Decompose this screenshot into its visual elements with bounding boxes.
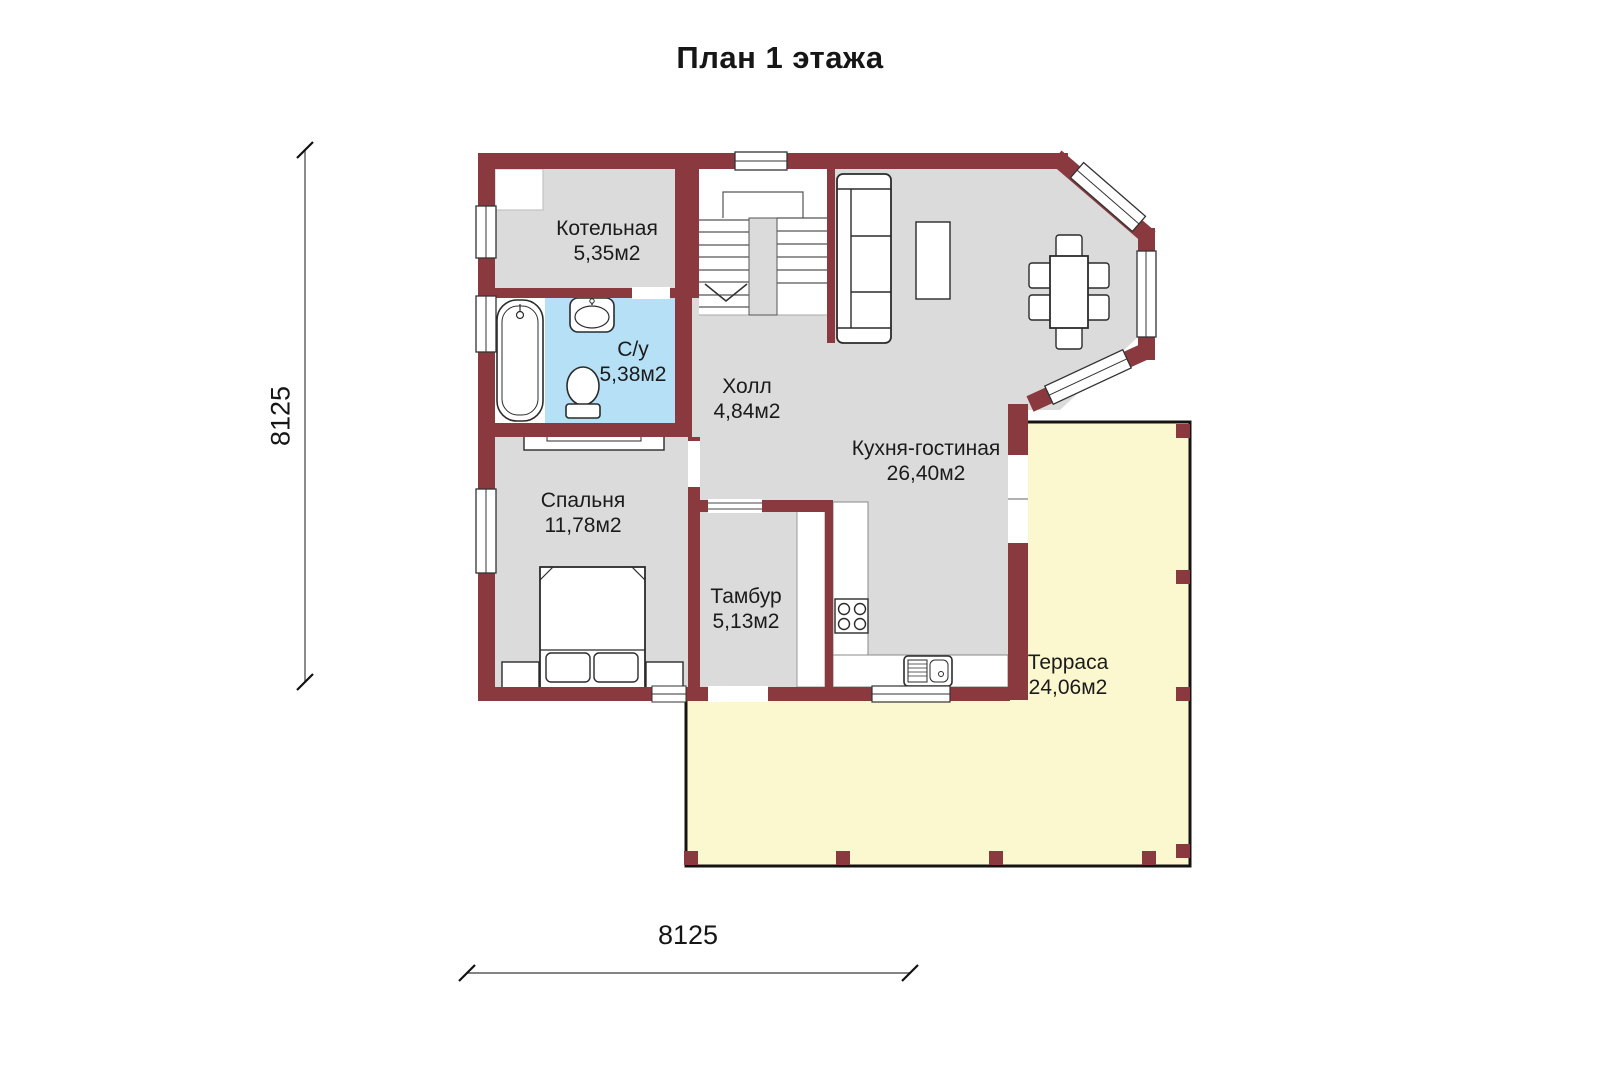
room-name: Тамбур (710, 584, 781, 609)
door-boiler (632, 287, 670, 299)
room-label-kitchen-living: Кухня-гостиная 26,40м2 (852, 436, 1001, 486)
window-bay-right (1137, 251, 1156, 337)
floor-plan-drawing (0, 0, 1620, 1080)
kitchen-sink (904, 656, 952, 686)
door-tambour-entry (708, 686, 768, 702)
room-area: 11,78м2 (541, 513, 625, 538)
window-bathroom (476, 296, 496, 352)
room-name: Котельная (556, 216, 658, 241)
bathtub (497, 300, 543, 421)
door-bedroom (688, 441, 700, 487)
room-label-bedroom: Спальня 11,78м2 (541, 488, 625, 538)
wall-stair-right (827, 169, 835, 343)
room-name: С/у (600, 337, 667, 362)
toilet (566, 367, 600, 418)
sofa (837, 174, 891, 343)
bed (540, 567, 645, 688)
room-area: 24,06м2 (1028, 675, 1109, 700)
dimension-width: 8125 (658, 920, 718, 951)
wall-kitchen-right (1008, 404, 1028, 700)
room-label-bathroom: С/у 5,38м2 (600, 337, 667, 387)
washbasin (570, 296, 614, 332)
window-boiler (476, 206, 496, 258)
room-label-tambour: Тамбур 5,13м2 (710, 584, 781, 634)
wall-tambour-left (688, 502, 700, 700)
plan-title: План 1 этажа (676, 40, 883, 76)
window-bedroom (476, 489, 496, 573)
room-name: Кухня-гостиная (852, 436, 1001, 461)
dimension-height: 8125 (266, 386, 297, 446)
boiler-unit (495, 169, 543, 210)
tambour-closet (797, 510, 825, 687)
room-name: Терраса (1028, 650, 1109, 675)
dining-table (1050, 256, 1088, 328)
room-label-hall: Холл 4,84м2 (714, 374, 781, 424)
coffee-table (916, 222, 950, 299)
window-stair-top (735, 152, 787, 170)
window-kitchen-bottom (872, 686, 950, 702)
stair-stringer (749, 218, 777, 315)
floor-plan-page: План 1 этажа Котельная 5,35м2 С/у 5,38м2… (0, 0, 1620, 1080)
wall-boiler-right (675, 169, 699, 298)
room-area: 26,40м2 (852, 461, 1001, 486)
wall-tambour-right (825, 500, 833, 700)
door-tambour-inner (708, 499, 762, 513)
room-name: Холл (714, 374, 781, 399)
room-name: Спальня (541, 488, 625, 513)
stove (835, 599, 868, 633)
room-area: 5,38м2 (600, 362, 667, 387)
door-kitchen-terrace (1008, 455, 1028, 543)
window-bedroom-bottom (652, 686, 686, 702)
room-area: 5,13м2 (710, 609, 781, 634)
room-area: 5,35м2 (556, 241, 658, 266)
room-area: 4,84м2 (714, 399, 781, 424)
staircase (699, 169, 827, 315)
wall-bath-right (675, 288, 692, 437)
wall-bath-bottom (478, 423, 692, 437)
room-label-boiler: Котельная 5,35м2 (556, 216, 658, 266)
room-label-terrace: Терраса 24,06м2 (1028, 650, 1109, 700)
wall-boiler-bath (495, 288, 632, 298)
